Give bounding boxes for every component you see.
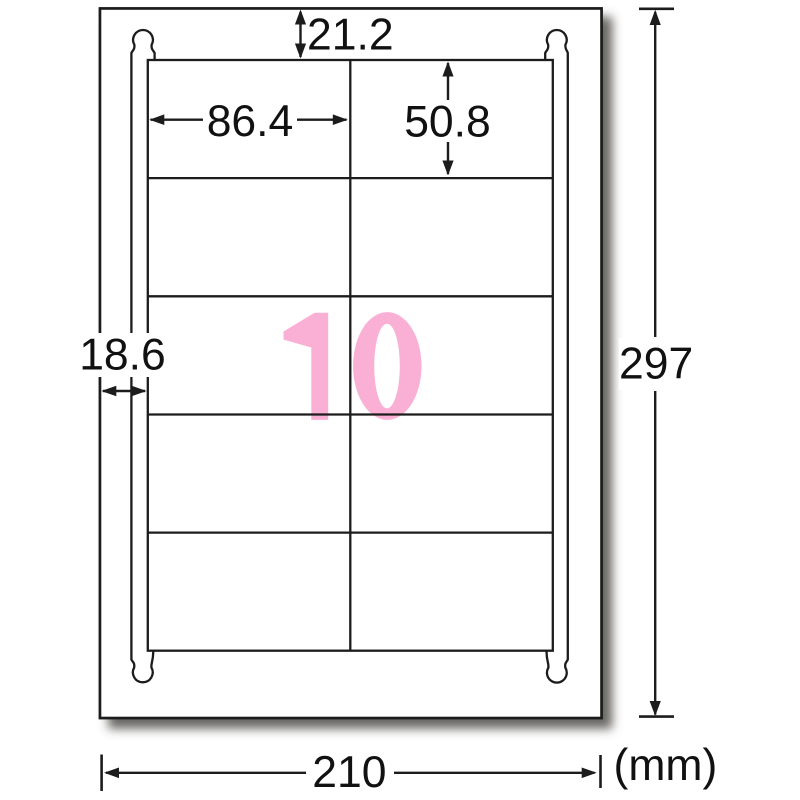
svg-text:50.8: 50.8 (404, 98, 491, 147)
svg-text:21.2: 21.2 (307, 11, 394, 60)
svg-text:18.6: 18.6 (79, 331, 166, 380)
svg-text:86.4: 86.4 (207, 97, 294, 146)
svg-text:210: 210 (312, 748, 386, 797)
svg-text:(mm): (mm) (614, 741, 718, 790)
svg-text:297: 297 (619, 340, 693, 389)
